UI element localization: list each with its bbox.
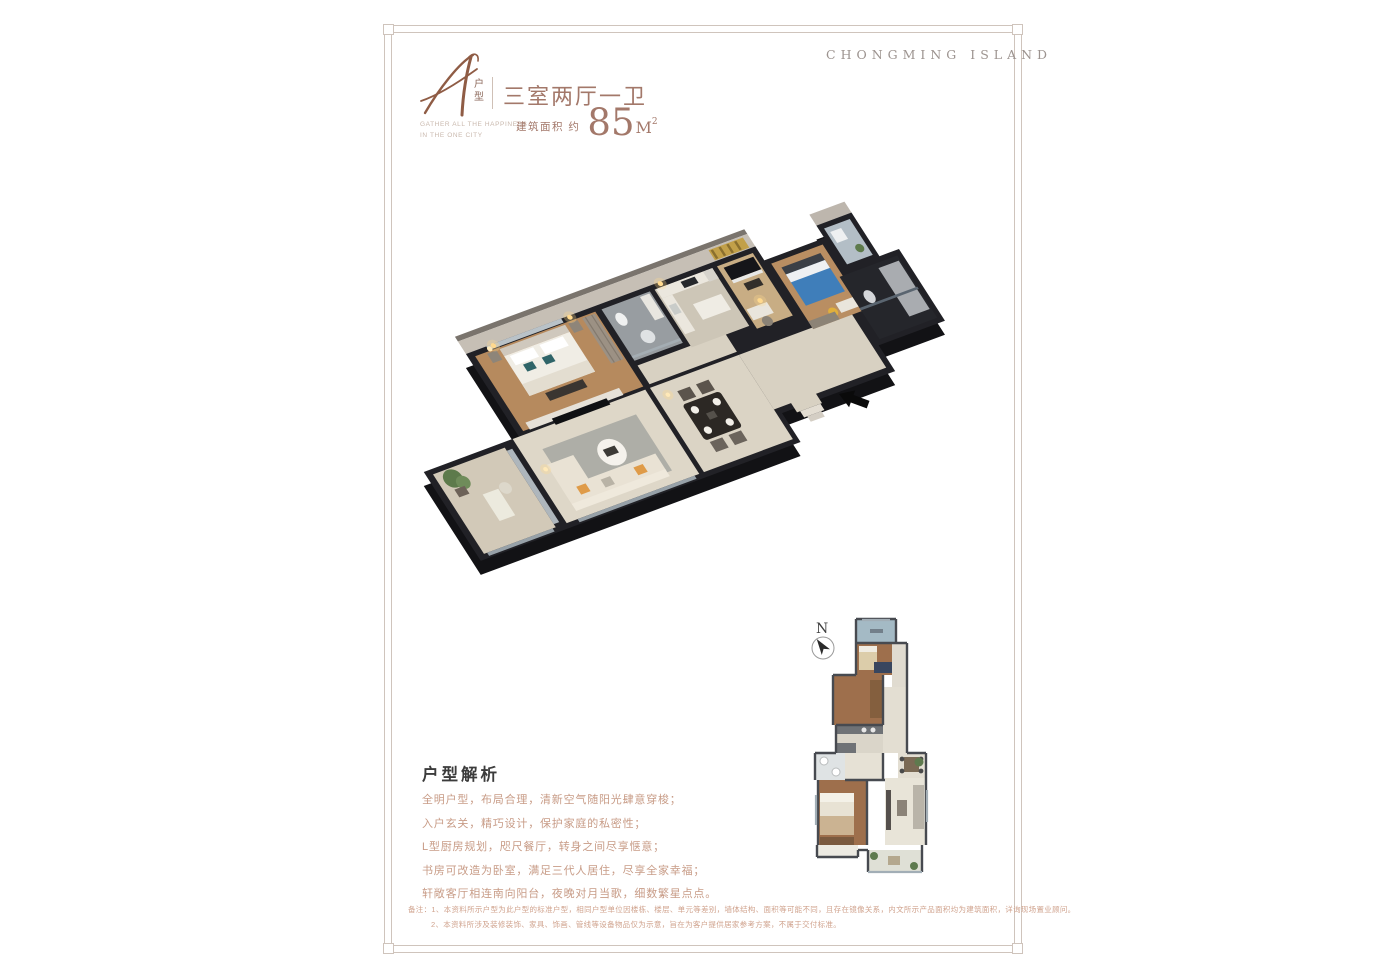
- compass-icon: [812, 636, 834, 659]
- analysis-line-5: 轩敞客厅相连南向阳台，夜晚对月当歌，细数繁星点点。: [422, 885, 717, 901]
- area-value: 85: [587, 104, 634, 141]
- analysis-line-2: 入户玄关，精巧设计，保护家庭的私密性；: [422, 815, 717, 831]
- analysis-line-3: L型厨房规划，咫尺餐厅，转身之间尽享惬意；: [422, 838, 717, 854]
- area-prefix: 建筑面积 约: [516, 119, 580, 141]
- disclaimer-line-1: 备注：1、本资料所示户型为此户型的标准户型，相同户型单位因楼栋、楼层、单元等差别…: [408, 904, 1075, 915]
- frame-corner-bottom-right: [1012, 943, 1023, 954]
- header-divider: [492, 77, 493, 109]
- analysis-heading: 户型解析: [422, 761, 500, 785]
- analysis-lines: 全明户型，布局合理，清新空气随阳光肆意穿梭； 入户玄关，精巧设计，保护家庭的私密…: [422, 791, 717, 909]
- brand-logotype: CHONGMING ISLAND: [826, 47, 1052, 62]
- type-label-char1: 户: [473, 78, 485, 91]
- tagline-line2: IN THE ONE CITY: [420, 130, 527, 141]
- north-label: N: [816, 621, 828, 637]
- apartment-structure: [420, 188, 980, 561]
- analysis-line-1: 全明户型，布局合理，清新空气随阳光肆意穿梭；: [422, 791, 717, 807]
- type-label-vertical: 户 型: [473, 78, 485, 104]
- area-superscript: 2: [652, 117, 658, 141]
- disclaimer-line-2: 2、本资料所涉及装修装饰、家具、饰画、管线等设备物品仅为示意，旨在为客户提供居家…: [431, 919, 841, 930]
- area-unit: M: [636, 118, 652, 141]
- area-info: 建筑面积 约 85 M 2: [516, 103, 658, 141]
- tagline-line1: GATHER ALL THE HAPPINESS: [420, 119, 527, 130]
- floorplan-3d-render: [420, 188, 980, 633]
- frame-corner-top-left: [383, 24, 394, 35]
- tagline: GATHER ALL THE HAPPINESS IN THE ONE CITY: [420, 119, 527, 141]
- poster-page: { "page": { "background": "#ffffff", "fr…: [0, 0, 1400, 980]
- floorplan-2d-mini: N: [800, 610, 990, 910]
- type-label-char2: 型: [473, 91, 485, 104]
- frame-corner-top-right: [1012, 24, 1023, 35]
- analysis-line-4: 书房可改造为卧室，满足三代人居住，尽享全家幸福；: [422, 862, 717, 878]
- frame-corner-bottom-left: [383, 943, 394, 954]
